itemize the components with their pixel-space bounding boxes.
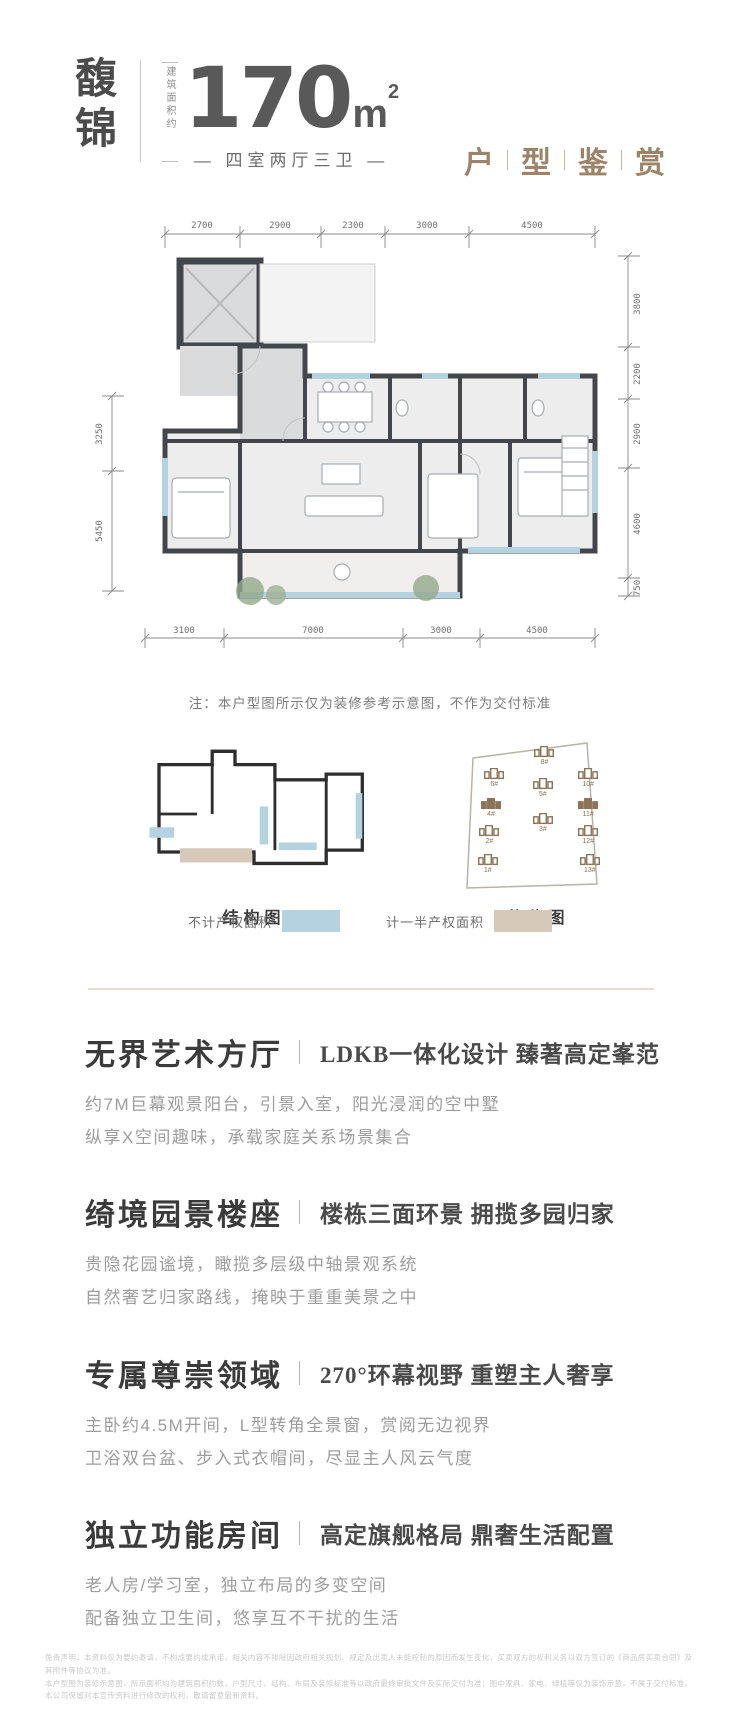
legend-label: 计一半产权面积 — [386, 912, 484, 931]
dim-label: 4500 — [521, 221, 543, 231]
dim-label: 5450 — [95, 520, 105, 542]
no-area-patch — [260, 806, 269, 844]
diagrams-row: 结构图 8#6#10#5#4#11#3#2#12#1#13# 落位图 — [0, 738, 740, 928]
structure-drawing — [121, 738, 387, 890]
dim-label: 3000 — [416, 221, 438, 231]
page-title: 户 型 鉴 赏 — [464, 138, 665, 182]
legend-swatch-tan — [494, 910, 552, 932]
project-name-char: 馥 — [75, 56, 118, 106]
building-icon: 3# — [533, 813, 553, 833]
half-area-balcony — [180, 848, 252, 862]
building-label: 13# — [584, 867, 596, 874]
location-diagram: 8#6#10#5#4#11#3#2#12#1#13# 落位图 — [457, 738, 619, 928]
dim-label: 4500 — [526, 626, 548, 636]
header-divider — [140, 60, 141, 162]
plan-note: 注：本户型图所示仅为装修参考示意图，不作为交付标准 — [0, 692, 740, 712]
section-line: 自然奢艺归家路线，掩映于重重美景之中 — [85, 1281, 660, 1314]
feature-sections: 无界艺术方厅 LDKB一体化设计 臻著高定峯范 约7M巨幕观景阳台，引景入室，阳… — [85, 1030, 660, 1671]
section-separator — [299, 1521, 300, 1545]
section-separator — [299, 1040, 300, 1064]
dim-label: 3000 — [430, 626, 452, 636]
legend-swatch-blue — [282, 910, 340, 932]
section-line: 配备独立卫生间，悠享互不干扰的生活 — [85, 1602, 660, 1635]
page-title-char: 户 — [464, 138, 494, 182]
area-block: 170 m 2 — 四室两厅三卫 — — [184, 56, 399, 171]
building-icon: 12# — [578, 825, 598, 845]
building-icon: 11# — [578, 798, 598, 818]
section-separator — [299, 1361, 300, 1385]
dim-label: 750 — [633, 580, 643, 596]
floorplan-drawing: 2700 2900 2300 3000 4500 3100 7000 3000 … — [50, 196, 690, 666]
disclaimer-line: 免责声明：本资料仅为要约邀请，不构成要约或承诺，相关内容不排除因政府相关规划、规… — [45, 1652, 700, 1678]
disclaimer-line: 本公司保留对本宣传资料进行修改的权利，敬请留意最新资料。 — [45, 1690, 700, 1703]
section-subtitle: 高定旗舰格局 鼎奢生活配置 — [320, 1516, 615, 1550]
title-separator — [621, 150, 622, 170]
dim-label: 3800 — [633, 293, 643, 315]
building-icon: 13# — [580, 854, 600, 874]
building-icon: 1# — [478, 854, 498, 874]
section-title: 绮境园景楼座 — [85, 1190, 283, 1234]
building-label: 4# — [487, 811, 495, 818]
section-line: 卫浴双台盆、步入式衣帽间，尽显主人风云气度 — [85, 1442, 660, 1475]
building-icon: 2# — [479, 825, 499, 845]
structure-diagram: 结构图 — [121, 738, 387, 928]
location-buildings: 8#6#10#5#4#11#3#2#12#1#13# — [457, 738, 619, 890]
building-label: 5# — [539, 791, 547, 798]
page-header: 馥 锦 建筑面积约 170 m 2 — 四室两厅三卫 — 户 型 鉴 赏 — [75, 56, 665, 186]
project-name-char: 锦 — [75, 106, 118, 156]
building-label: 2# — [485, 838, 493, 845]
dim-label: 7000 — [302, 626, 324, 636]
building-label: 8# — [541, 759, 549, 766]
building-label: 1# — [484, 867, 492, 874]
section-separator — [299, 1200, 300, 1224]
building-icon: 6# — [484, 768, 504, 788]
section-line: 老人房/学习室，独立布局的多变空间 — [85, 1569, 660, 1602]
building-label: 11# — [583, 811, 594, 818]
layout-label: — 四室两厅三卫 — — [184, 146, 399, 171]
no-area-patch — [356, 793, 363, 839]
section-subtitle: LDKB一体化设计 臻著高定峯范 — [320, 1035, 660, 1069]
dim-label: 3250 — [95, 423, 105, 445]
legal-disclaimer: 免责声明：本资料仅为要约邀请，不构成要约或承诺，相关内容不排除因政府相关规划、规… — [45, 1652, 700, 1703]
building-icon: 8# — [534, 746, 554, 766]
section-line: 纵享X空间趣味，承载家庭关系场景集合 — [85, 1121, 660, 1154]
area-unit: m — [352, 94, 388, 134]
dim-label: 4600 — [633, 513, 643, 535]
shared-lobby — [260, 264, 375, 342]
page-title-char: 赏 — [635, 138, 665, 182]
page-title-char: 鉴 — [578, 138, 608, 182]
section-title: 独立功能房间 — [85, 1511, 283, 1555]
legend-item: 不计产权面积 — [188, 910, 340, 932]
section-subtitle: 楼栋三面环景 拥揽多园归家 — [320, 1195, 615, 1229]
dim-label: 3100 — [173, 626, 195, 636]
feature-section: 绮境园景楼座 楼栋三面环景 拥揽多园归家 贵隐花园谧境，瞰揽多层级中轴景观系统 … — [85, 1190, 660, 1314]
section-line: 主卧约4.5M开间，L型转角全景窗，赏阅无边视界 — [85, 1409, 660, 1442]
building-icon: 5# — [533, 778, 553, 798]
legend: 不计产权面积 计一半产权面积 — [0, 910, 740, 932]
building-label: 10# — [582, 781, 594, 788]
project-name: 馥 锦 — [75, 56, 118, 155]
section-divider — [88, 988, 654, 990]
feature-section: 无界艺术方厅 LDKB一体化设计 臻著高定峯范 约7M巨幕观景阳台，引景入室，阳… — [85, 1030, 660, 1154]
dim-label: 2300 — [342, 221, 364, 231]
dim-left — [102, 392, 124, 595]
no-area-patch — [150, 827, 175, 837]
dim-label: 2900 — [269, 221, 291, 231]
section-line: 约7M巨幕观景阳台，引景入室，阳光浸润的空中墅 — [85, 1088, 660, 1121]
area-value: 170 — [184, 56, 350, 140]
dim-label: 2900 — [633, 423, 643, 445]
dim-label: 2200 — [633, 363, 643, 385]
building-icon: 10# — [578, 768, 598, 788]
section-title: 无界艺术方厅 — [85, 1030, 283, 1074]
building-label: 12# — [582, 838, 594, 845]
section-title: 专属尊崇领域 — [85, 1351, 283, 1395]
building-icon: 4# — [481, 798, 501, 818]
page-title-char: 型 — [521, 138, 551, 182]
section-line: 贵隐花园谧境，瞰揽多层级中轴景观系统 — [85, 1248, 660, 1281]
disclaimer-line: 本户型图为装修示意图，所示面积均为建筑面积约数，户型尺寸、结构、布局及装修标准等… — [45, 1678, 700, 1691]
legend-label: 不计产权面积 — [188, 912, 272, 931]
title-separator — [507, 150, 508, 170]
area-exponent: 2 — [388, 82, 399, 102]
building-label: 3# — [539, 826, 547, 833]
floorplan: 2700 2900 2300 3000 4500 3100 7000 3000 … — [50, 196, 690, 666]
section-subtitle: 270°环幕视野 重塑主人奢享 — [320, 1356, 614, 1390]
area-note: 建筑面积约 — [161, 62, 178, 162]
legend-item: 计一半产权面积 — [386, 910, 552, 932]
feature-section: 专属尊崇领域 270°环幕视野 重塑主人奢享 主卧约4.5M开间，L型转角全景窗… — [85, 1351, 660, 1475]
dim-label: 2700 — [191, 221, 213, 231]
title-separator — [564, 150, 565, 170]
feature-section: 独立功能房间 高定旗舰格局 鼎奢生活配置 老人房/学习室，独立布局的多变空间 配… — [85, 1511, 660, 1635]
building-label: 6# — [490, 781, 498, 788]
no-area-patch — [279, 843, 317, 851]
